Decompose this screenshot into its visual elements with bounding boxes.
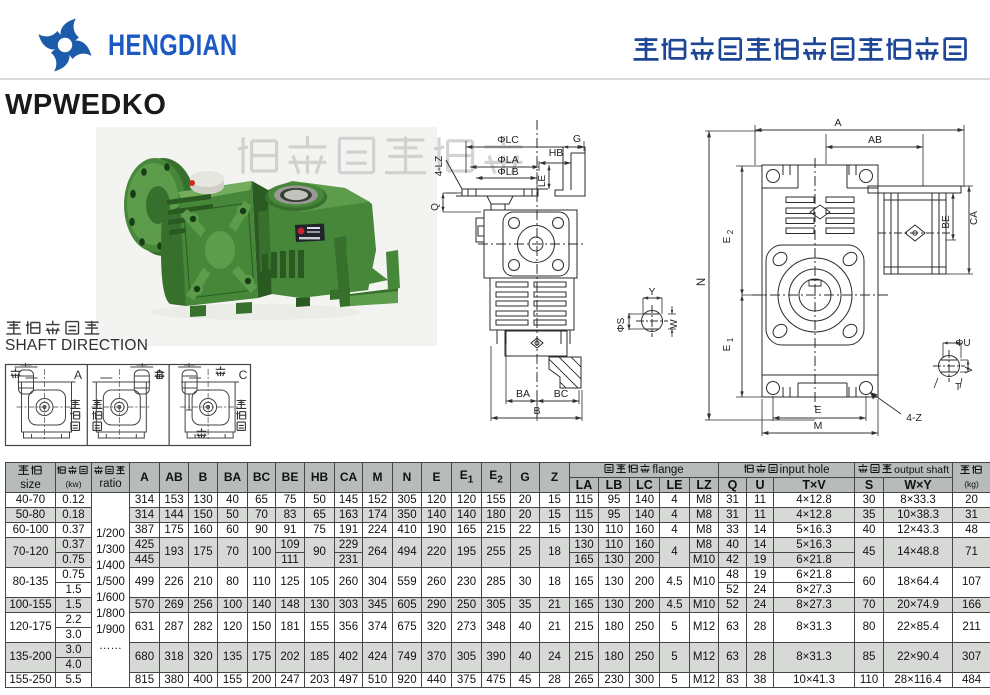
svg-text:E: E <box>814 404 821 416</box>
svg-text:HB: HB <box>549 147 564 159</box>
svg-text:G: G <box>573 133 581 145</box>
svg-text:AB: AB <box>868 134 882 146</box>
svg-text:M: M <box>814 420 823 432</box>
svg-text:C: C <box>239 368 248 382</box>
svg-text:1: 1 <box>726 337 735 342</box>
svg-text:W: W <box>669 319 680 329</box>
svg-text:E: E <box>722 236 733 243</box>
svg-text:2: 2 <box>726 229 735 234</box>
svg-text:A: A <box>74 368 82 382</box>
svg-text:A: A <box>834 117 841 129</box>
svg-text:BC: BC <box>554 388 569 400</box>
svg-text:LE: LE <box>537 175 548 188</box>
svg-text:ΦLC: ΦLC <box>497 134 519 146</box>
svg-text:BE: BE <box>941 215 952 229</box>
svg-text:CA: CA <box>969 211 980 225</box>
svg-text:Q: Q <box>430 203 441 211</box>
svg-text:ΦS: ΦS <box>616 317 627 332</box>
svg-text:4-Z: 4-Z <box>906 412 922 424</box>
svg-text:ΦU: ΦU <box>955 338 970 349</box>
svg-text:E: E <box>722 344 733 351</box>
svg-text:ΦLA: ΦLA <box>497 154 518 166</box>
svg-text:Y: Y <box>649 287 656 298</box>
svg-text:N: N <box>696 278 708 286</box>
svg-text:4-LZ: 4-LZ <box>434 156 445 177</box>
svg-text:ΦLB: ΦLB <box>497 166 518 178</box>
svg-text:T: T <box>955 382 961 393</box>
svg-text:BA: BA <box>516 388 530 400</box>
